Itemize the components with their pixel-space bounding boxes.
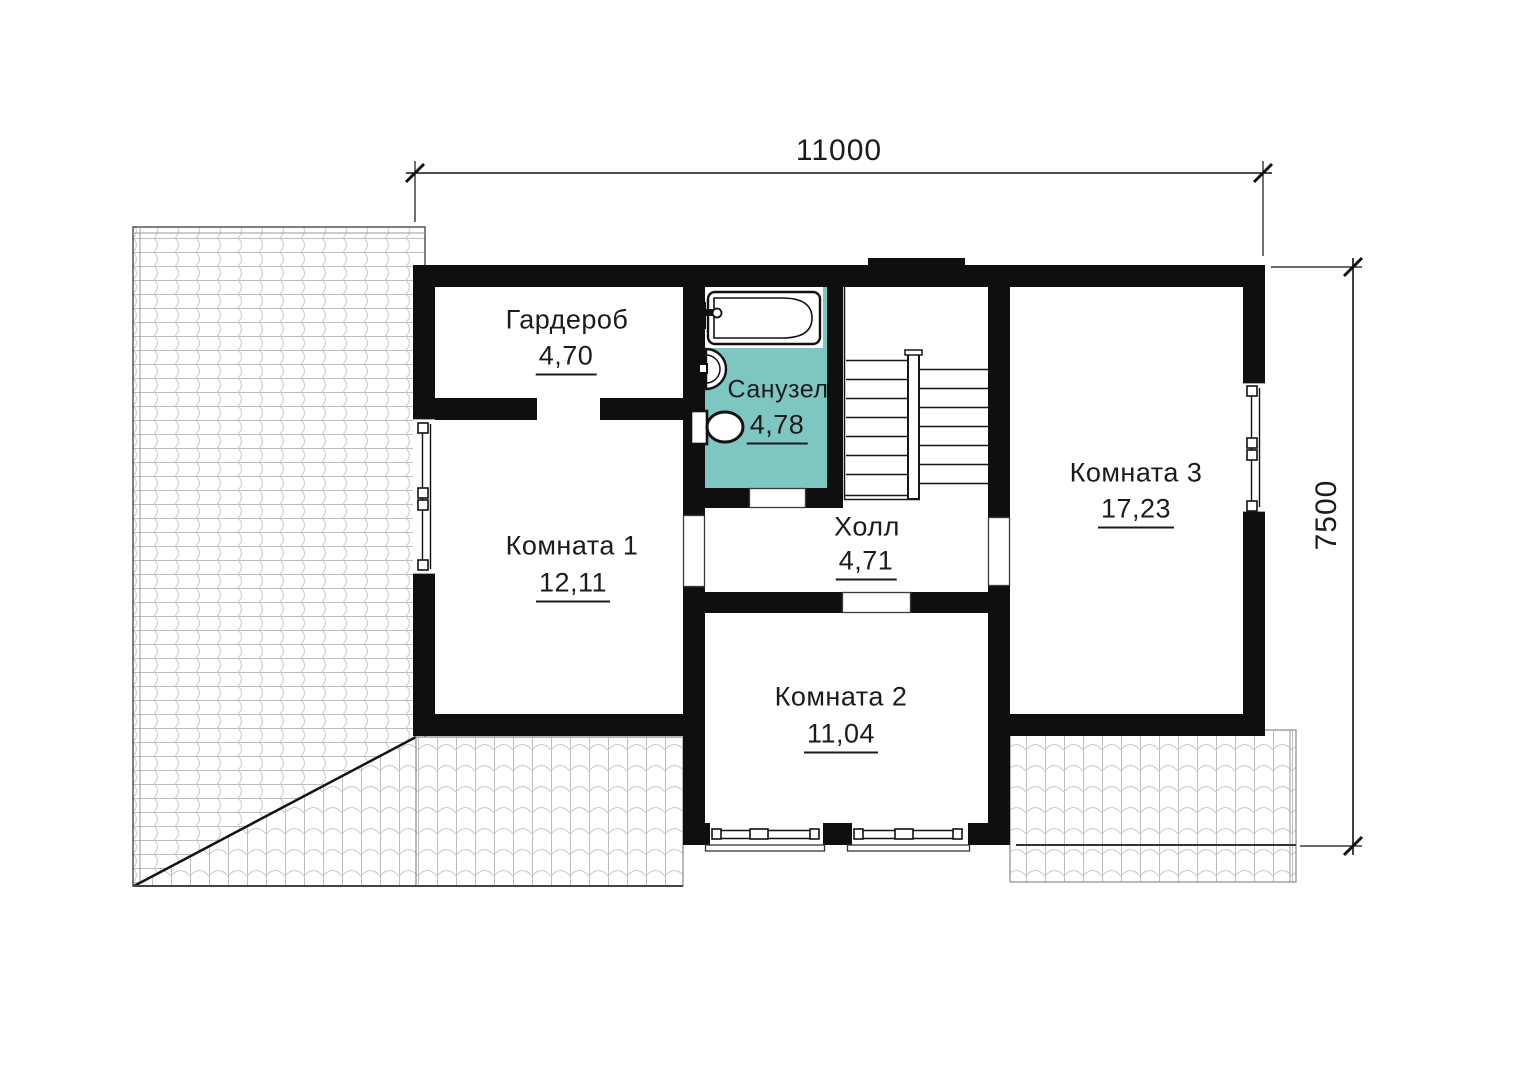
wall-right-upper — [1243, 265, 1265, 382]
toilet-icon — [691, 411, 743, 444]
room-label-wardrobe: Гардероб — [506, 305, 629, 336]
wall-room2-bottom-a — [683, 823, 710, 845]
door-room2 — [843, 593, 911, 613]
window-right — [1243, 382, 1265, 513]
wall-center-right-lower — [988, 586, 1010, 845]
door-room3 — [989, 518, 1010, 586]
wall-bath-stairs — [827, 287, 843, 488]
wall-bath-bottom-a — [704, 488, 749, 508]
wall-bottom-right — [1010, 714, 1265, 736]
door-bathroom — [750, 489, 806, 508]
staircase — [844, 287, 988, 500]
window-sill — [848, 845, 970, 851]
stair-rail-cap — [905, 350, 922, 355]
stair-treads-right — [919, 370, 988, 484]
roof-left — [133, 227, 425, 886]
window-left — [413, 418, 435, 575]
wall-hall-room2-b — [911, 592, 988, 613]
door-wardrobe — [538, 399, 599, 419]
window-sill — [706, 845, 825, 851]
room-area-room1: 12,11 — [536, 568, 610, 603]
wall-center-right-upper — [988, 287, 1010, 517]
door-room1 — [684, 516, 705, 587]
dimension-width — [406, 161, 1272, 256]
window-room2-left — [706, 823, 825, 851]
room-label-room3: Комната 3 — [1070, 458, 1203, 489]
wall-wardrobe-a — [435, 398, 537, 420]
wall-bottom-left — [413, 714, 685, 736]
wall-top — [413, 265, 1265, 287]
room-label-room1: Комната 1 — [506, 531, 639, 562]
wall-bath-bottom-b — [806, 488, 843, 508]
wall-left-lower — [413, 575, 435, 736]
wall-wardrobe-b — [600, 398, 684, 420]
room-label-bathroom: Санузел — [728, 376, 829, 405]
floor-plan: 11000 7500 Гардероб 4,70 Санузел 4,78 Ко… — [0, 0, 1527, 1080]
floor-plan-drawing — [0, 0, 1527, 1080]
dimension-height-label: 7500 — [1310, 480, 1344, 551]
dimension-width-label: 11000 — [796, 134, 882, 168]
bathtub-icon — [702, 292, 820, 344]
window-room2-right — [848, 823, 970, 851]
room-area-room3: 17,23 — [1098, 494, 1174, 529]
room-label-room2: Комната 2 — [775, 682, 908, 713]
wall-right-lower — [1243, 513, 1265, 736]
roof-right — [1010, 730, 1296, 882]
wall-room2-bottom-c — [968, 823, 1010, 845]
wall-center-left-lower — [683, 587, 705, 845]
wall-hall-room2-a — [705, 592, 842, 613]
room-area-hall: 4,71 — [836, 546, 897, 581]
wall-center-left-upper — [683, 287, 705, 515]
room-area-room2: 11,04 — [804, 719, 878, 754]
wall-left-upper — [413, 265, 435, 418]
room-area-bathroom: 4,78 — [747, 410, 808, 445]
stair-rail — [908, 352, 919, 499]
stair-treads-left — [846, 361, 908, 475]
wall-room2-bottom-b — [823, 823, 852, 845]
room-label-hall: Холл — [834, 512, 900, 543]
room-area-wardrobe: 4,70 — [536, 341, 597, 376]
